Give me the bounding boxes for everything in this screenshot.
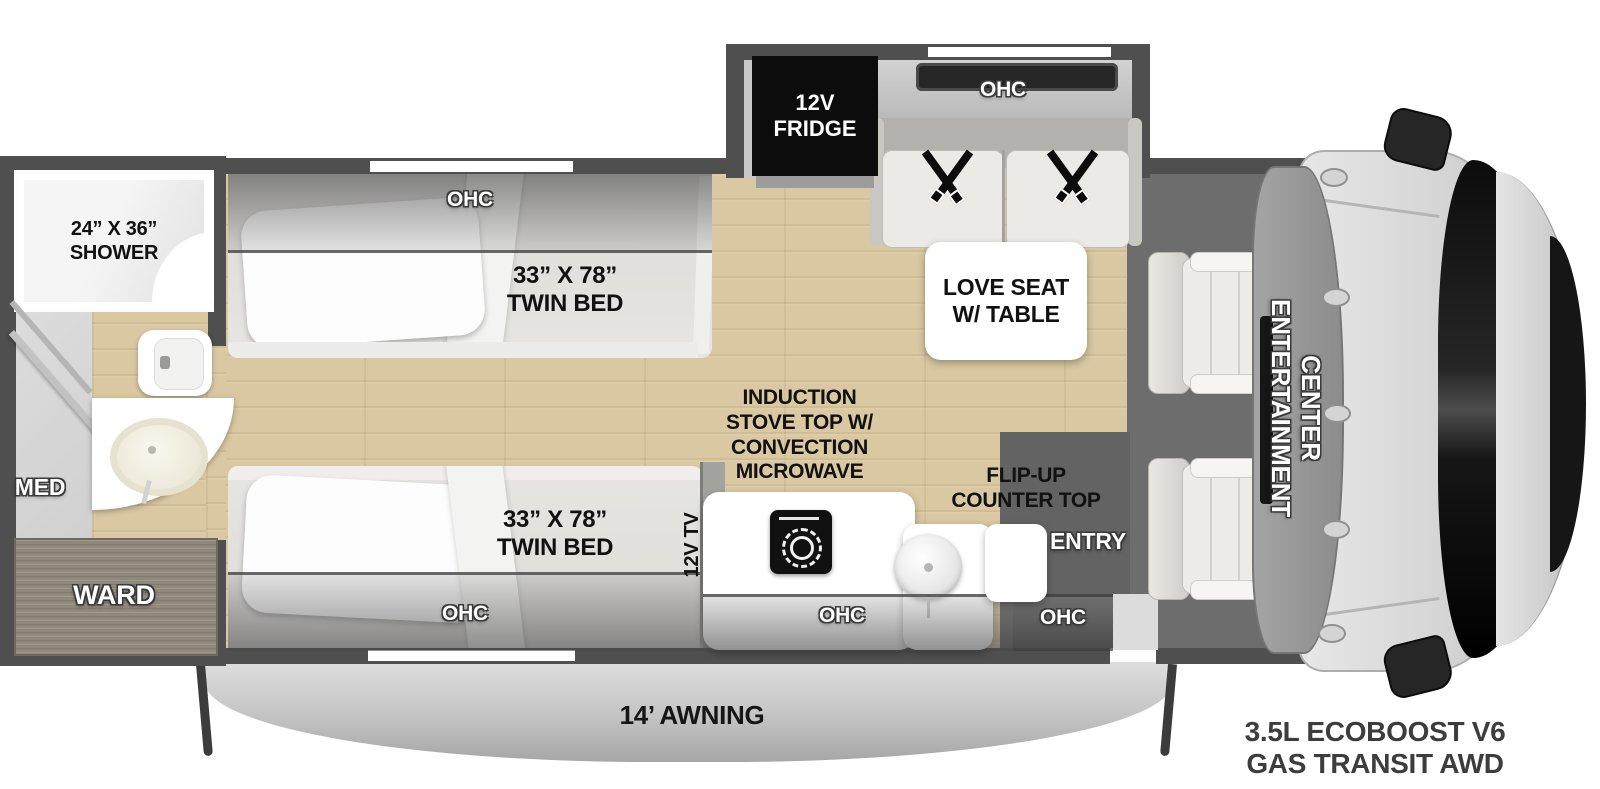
ohc-entry-label: OHC xyxy=(1013,606,1113,630)
flip-up-line1: FLIP-UP xyxy=(986,464,1066,487)
kitchen-sink xyxy=(894,534,962,600)
loveseat-label: LOVE SEAT W/ TABLE xyxy=(943,274,1069,328)
loveseat-seat-right xyxy=(1006,150,1130,248)
toilet xyxy=(138,330,212,396)
window-bottom xyxy=(368,650,575,661)
loveseat-armrest-right xyxy=(1128,118,1142,246)
loveseat-seat-left xyxy=(882,150,1004,248)
kitchen-sink-drain xyxy=(924,563,933,572)
twin-bed-bottom-label: 33” X 78” TWIN BED xyxy=(450,506,660,563)
shower-label-line2: SHOWER xyxy=(70,242,158,264)
twin-bed-top-line2: TWIN BED xyxy=(507,290,623,317)
ohc-top-bed-label: OHC xyxy=(228,188,712,212)
entertainment-line2: CENTER xyxy=(1295,355,1325,461)
seat-seam xyxy=(1210,468,1212,586)
seat-seam xyxy=(1238,468,1240,586)
rivet xyxy=(1322,520,1350,539)
rv-floorplan: 24” X 36” SHOWER MED WARD OHC 33” X 78” … xyxy=(0,0,1600,789)
twin-bed-top-line1: 33” X 78” xyxy=(513,262,617,289)
shower-label: 24” X 36” SHOWER xyxy=(24,218,204,265)
rivet xyxy=(1320,168,1348,187)
fridge-label-line1: 12V xyxy=(795,90,834,115)
stove-label: INDUCTION STOVE TOP W/ CONVECTION MICROW… xyxy=(682,386,917,485)
twin-bed-top-label: 33” X 78” TWIN BED xyxy=(455,262,675,319)
window-top xyxy=(370,161,573,172)
ohc-cabinet-top-bed xyxy=(228,174,712,253)
engine-label-line2: GAS TRANSIT AWD xyxy=(1246,748,1503,779)
flip-up-counter xyxy=(985,524,1047,602)
toilet-flush xyxy=(160,356,170,369)
bathroom-sink-basin xyxy=(110,418,208,496)
loveseat-divider xyxy=(1002,150,1005,246)
ohc-galley-label: OHC xyxy=(787,604,897,628)
stove-label-line4: MICROWAVE xyxy=(736,460,864,483)
bathroom-sink-dot xyxy=(148,446,156,454)
rivet xyxy=(1323,404,1351,423)
stove-label-line2: STOVE TOP W/ xyxy=(726,411,873,434)
wardrobe-label: WARD xyxy=(14,580,214,611)
entertainment-line1: ENTERTAINMENT xyxy=(1265,299,1295,517)
twin-bed-bottom-line2: TWIN BED xyxy=(497,534,613,561)
stove-label-line3: CONVECTION xyxy=(731,436,868,459)
shower-label-line1: 24” X 36” xyxy=(71,218,157,240)
loveseat-label-line1: LOVE SEAT xyxy=(943,274,1069,300)
flip-up-counter-label: FLIP-UP COUNTER TOP xyxy=(916,464,1136,514)
ohc-loveseat-label: OHC xyxy=(948,78,1058,102)
entry-label: ENTRY xyxy=(1040,528,1136,554)
front-fascia xyxy=(1550,236,1586,572)
twin-bed-bottom-line1: 33” X 78” xyxy=(503,506,607,533)
fridge-label-line2: FRIDGE xyxy=(773,116,856,141)
fridge-12v: 12V FRIDGE xyxy=(752,56,878,176)
seat-seam xyxy=(1210,262,1212,380)
stove-vent xyxy=(779,517,819,520)
med-cabinet-label: MED xyxy=(4,474,76,500)
engine-label-line1: 3.5L ECOBOOST V6 xyxy=(1245,716,1506,747)
stove-ring-inner xyxy=(790,536,814,560)
flip-up-line2: COUNTER TOP xyxy=(951,489,1100,512)
awning-label: 14’ AWNING xyxy=(572,700,812,731)
fridge-label: 12V FRIDGE xyxy=(773,90,856,143)
entry-step xyxy=(1113,594,1158,650)
stove-label-line1: INDUCTION xyxy=(743,386,857,409)
window-slideout xyxy=(928,47,1111,57)
fridge-base xyxy=(756,176,874,188)
seat-seam xyxy=(1238,262,1240,380)
loveseat-label-line2: W/ TABLE xyxy=(952,301,1059,327)
rivet xyxy=(1322,288,1350,307)
tv-12v-label: 12V TV xyxy=(681,490,705,600)
ohc-bottom-bed-label: OHC xyxy=(228,602,702,626)
bed-foot-rail xyxy=(228,342,698,358)
loveseat-label-box: LOVE SEAT W/ TABLE xyxy=(925,242,1087,360)
engine-label: 3.5L ECOBOOST V6 GAS TRANSIT AWD xyxy=(1205,716,1545,780)
induction-stove-icon xyxy=(770,510,832,574)
entertainment-center-label: ENTERTAINMENT CENTER xyxy=(1267,173,1323,643)
